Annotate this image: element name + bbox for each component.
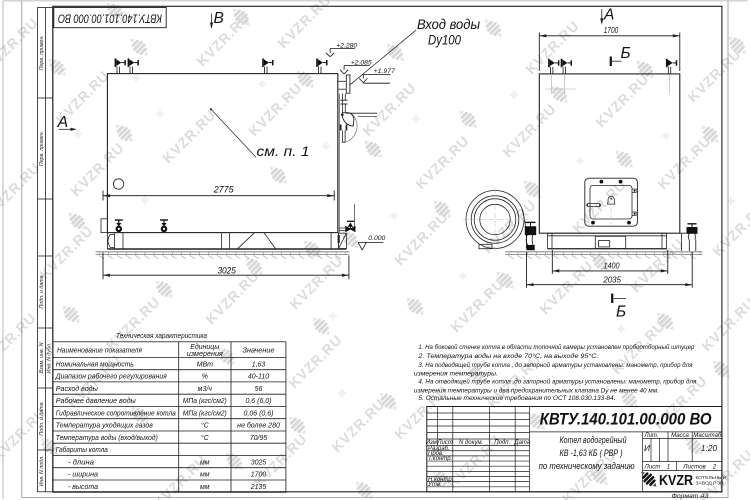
svg-text:измерения температуры.: измерения температуры.: [414, 371, 498, 378]
svg-text:3. На подводящей трубе котла: 3. На подводящей трубе котла , до запорн…: [418, 361, 692, 369]
svg-text:мм: мм: [200, 459, 210, 466]
svg-text:0,6 (6,0): 0,6 (6,0): [245, 398, 271, 405]
svg-text:1400: 1400: [604, 261, 620, 271]
svg-text:4. На отводящей трубе котла ,: 4. На отводящей трубе котла ,до запорной…: [418, 378, 696, 386]
svg-text:измерения температуры и два пр: измерения температуры и два предохраните…: [414, 386, 659, 394]
svg-text:2035: 2035: [602, 274, 621, 284]
svg-text:Лист: Лист: [644, 463, 661, 470]
svg-text:°С: °С: [201, 434, 210, 442]
svg-text:Вход воды: Вход воды: [417, 17, 480, 32]
svg-text:Масса: Масса: [671, 433, 689, 439]
svg-text:Б: Б: [621, 45, 631, 62]
svg-text:%: %: [202, 374, 208, 381]
svg-text:Температура воды (вход/выход): Температура воды (вход/выход): [56, 434, 158, 442]
svg-text:Наименование показателя: Наименование показателя: [57, 348, 142, 355]
svg-text:Котел водогрейный: Котел водогрейный: [560, 435, 628, 446]
svg-text:Гидравлическое сопротивление к: Гидравлическое сопротивление котла: [56, 409, 176, 417]
svg-text:КВТУ.140.101.00.000 ВО: КВТУ.140.101.00.000 ВО: [58, 12, 162, 24]
svg-text:Формат А3: Формат А3: [672, 493, 709, 500]
svg-text:2. Температура воды на входе: 2. Температура воды на входе 70°С, на вы…: [417, 352, 598, 360]
svg-text:70/95: 70/95: [250, 435, 268, 442]
svg-text:по техническому заданию: по техническому заданию: [539, 461, 635, 472]
svg-text:Перв. примен.: Перв. примен.: [39, 131, 45, 166]
svg-text:N докум.: N докум.: [459, 440, 483, 446]
svg-text:2775: 2775: [213, 185, 235, 195]
svg-text:°С: °С: [201, 422, 210, 430]
svg-text:Техническая характеристика: Техническая характеристика: [116, 331, 207, 340]
svg-text:5. Остальные технические треб: 5. Остальные технические требования по О…: [418, 394, 615, 402]
svg-text:мм: мм: [200, 472, 210, 479]
svg-text:Инв. N дубл.: Инв. N дубл.: [47, 343, 53, 374]
svg-text:измерения: измерения: [187, 351, 223, 358]
svg-text:+2.085: +2.085: [351, 59, 372, 66]
svg-text:Утв.: Утв.: [427, 482, 442, 488]
svg-text:+1.977: +1.977: [374, 68, 395, 75]
svg-text:1: 1: [667, 463, 670, 470]
svg-text:Лит.: Лит.: [643, 433, 658, 439]
svg-text:1700: 1700: [251, 472, 267, 479]
svg-text:ЗАВОД РЭП: ЗАВОД РЭП: [696, 481, 724, 487]
svg-text:- высота: - высота: [68, 484, 98, 491]
svg-text:KVZR: KVZR: [659, 473, 693, 489]
svg-text:Единицы: Единицы: [190, 343, 220, 351]
svg-text:+2.280: +2.280: [336, 43, 357, 50]
svg-text:0.000: 0.000: [368, 235, 385, 242]
svg-text:40-110: 40-110: [248, 374, 269, 381]
svg-text:Значение: Значение: [243, 348, 275, 355]
svg-text:Подп. и дата: Подп. и дата: [39, 402, 45, 435]
svg-text:КВТУ.140.101.00.000 ВО: КВТУ.140.101.00.000 ВО: [540, 411, 712, 429]
svg-text:2: 2: [712, 463, 717, 470]
svg-text:Габариты котла: Габариты котла: [56, 446, 108, 454]
svg-text:А: А: [603, 7, 614, 24]
svg-text:Подп.: Подп.: [494, 440, 510, 446]
svg-text:Масштаб: Масштаб: [693, 433, 722, 439]
svg-text:56: 56: [255, 386, 263, 393]
svg-text:1,63: 1,63: [252, 361, 266, 368]
svg-text:МПа (кгс/см2): МПа (кгс/см2): [183, 410, 227, 417]
svg-text:0,06 (0,6): 0,06 (0,6): [244, 410, 274, 417]
svg-text:Взам. инв. N: Взам. инв. N: [39, 342, 45, 373]
svg-text:КВ -1,63 КБ ( РВР ): КВ -1,63 КБ ( РВР ): [560, 448, 623, 459]
svg-text:1. На боковой стенке котла в: 1. На боковой стенке котла в области топ…: [418, 343, 694, 351]
svg-text:В: В: [214, 10, 224, 27]
svg-text:Диапазон рабочего регулировани: Диапазон рабочего регулирования: [55, 373, 167, 381]
svg-text:Б: Б: [616, 304, 626, 321]
svg-text:2135: 2135: [250, 484, 267, 491]
svg-text:не более 280: не более 280: [237, 422, 280, 430]
svg-text:Дата: Дата: [513, 440, 530, 446]
svg-text:Dy100: Dy100: [428, 33, 461, 48]
svg-text:Рабочее давление воды: Рабочее давление воды: [56, 397, 137, 405]
svg-text:Листов: Листов: [682, 463, 706, 470]
svg-text:см. п. 1: см. п. 1: [257, 144, 310, 159]
svg-text:3025: 3025: [217, 265, 236, 275]
svg-text:Инв. N подл.: Инв. N подл.: [39, 455, 45, 486]
svg-text:А: А: [57, 114, 69, 131]
svg-text:1:20: 1:20: [701, 443, 718, 453]
svg-text:Т.контр.: Т.контр.: [428, 456, 452, 462]
svg-text:Перв. примен.: Перв. примен.: [39, 35, 45, 70]
svg-text:мм: мм: [200, 484, 210, 491]
svg-text:И: И: [644, 443, 651, 453]
svg-text:- длина: - длина: [68, 458, 94, 466]
svg-text:Номинальная мощность: Номинальная мощность: [56, 361, 134, 368]
svg-text:Расход воды: Расход воды: [56, 385, 99, 393]
svg-text:1700: 1700: [604, 25, 619, 35]
svg-text:м3/ч: м3/ч: [198, 386, 213, 393]
svg-text:Подп. и дата: Подп. и дата: [39, 275, 45, 308]
svg-text:3025: 3025: [251, 459, 267, 466]
svg-text:Температура уходящих газов: Температура уходящих газов: [56, 422, 153, 430]
svg-text:- ширина: - ширина: [68, 472, 98, 479]
svg-text:МПа (кгс/см2): МПа (кгс/см2): [183, 398, 227, 405]
svg-text:МВт: МВт: [197, 361, 214, 368]
